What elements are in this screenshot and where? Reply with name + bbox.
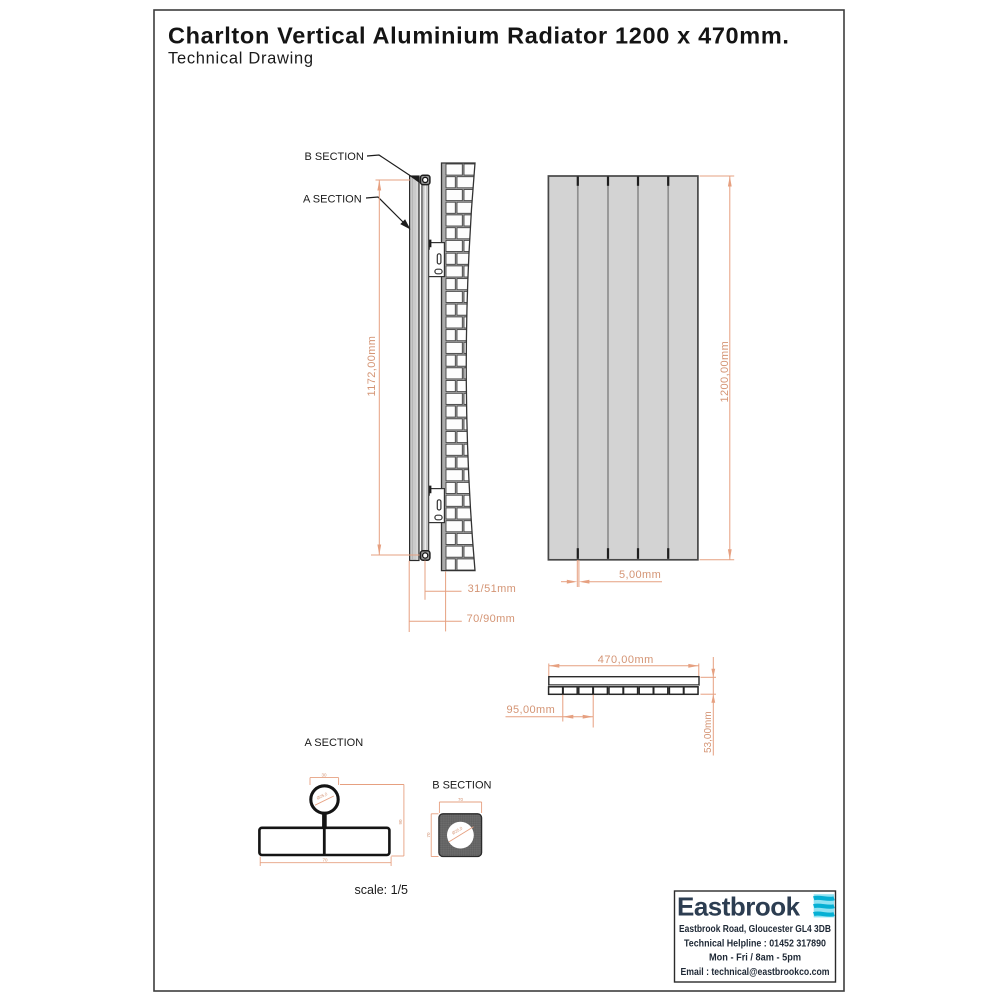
svg-text:70: 70 — [426, 832, 431, 838]
svg-text:Technical Drawing: Technical Drawing — [168, 50, 314, 68]
svg-text:95,00mm: 95,00mm — [507, 704, 556, 716]
svg-text:Eastbrook Road, Gloucester GL4: Eastbrook Road, Gloucester GL4 3DB — [679, 924, 831, 935]
svg-text:70: 70 — [458, 797, 464, 802]
svg-text:Charlton Vertical Aluminium Ra: Charlton Vertical Aluminium Radiator 120… — [168, 23, 790, 49]
svg-text:Eastbrook: Eastbrook — [677, 891, 801, 921]
svg-text:31/51mm: 31/51mm — [468, 583, 517, 595]
svg-text:30: 30 — [322, 772, 328, 777]
svg-text:A SECTION: A SECTION — [305, 737, 364, 749]
svg-text:Technical Helpline : 01452 317: Technical Helpline : 01452 317890 — [684, 938, 826, 949]
svg-text:5,00mm: 5,00mm — [619, 569, 661, 581]
svg-text:53,00mm: 53,00mm — [703, 711, 714, 753]
svg-text:A SECTION: A SECTION — [303, 194, 362, 206]
svg-text:1200,00mm: 1200,00mm — [719, 341, 731, 403]
svg-text:470,00mm: 470,00mm — [598, 654, 654, 666]
svg-text:70: 70 — [323, 857, 329, 862]
svg-text:Mon - Fri / 8am - 5pm: Mon - Fri / 8am - 5pm — [709, 952, 801, 963]
svg-text:Email : technical@eastbrookco.: Email : technical@eastbrookco.com — [681, 967, 830, 978]
svg-text:B SECTION: B SECTION — [305, 151, 364, 163]
svg-text:scale: 1/5: scale: 1/5 — [355, 883, 409, 897]
svg-text:B SECTION: B SECTION — [432, 780, 491, 792]
svg-text:90: 90 — [398, 819, 403, 825]
svg-text:70/90mm: 70/90mm — [467, 613, 516, 625]
svg-text:1172,00mm: 1172,00mm — [366, 336, 378, 397]
